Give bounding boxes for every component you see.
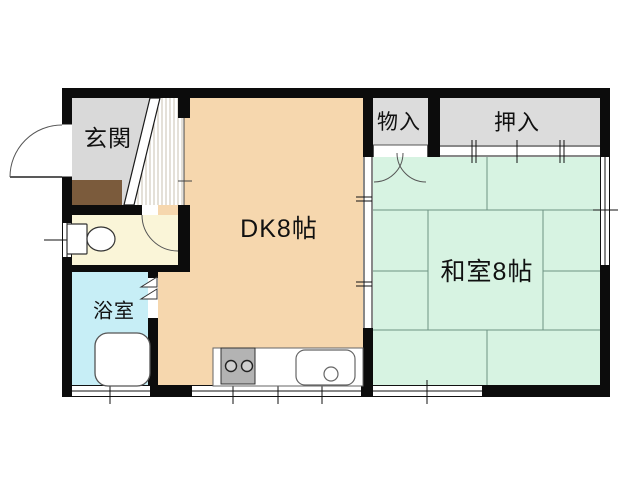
room-label-bathroom: 浴室 (93, 295, 135, 324)
entrance-opening-jambs (62, 124, 72, 177)
floor-plan: 玄関 物入 押入 DK8帖 和室8帖 浴室 (0, 0, 640, 480)
room-label-monoire: 物入 (377, 106, 421, 136)
sink-icon (296, 350, 355, 385)
room-label-oshiire: 押入 (494, 105, 540, 137)
entry-step (72, 180, 122, 205)
stove-icon (221, 348, 255, 384)
entrance-door-icon (10, 125, 62, 177)
floor-plan-drawing (0, 0, 640, 480)
kitchen-counter (213, 348, 363, 386)
room-label-washitsu: 和室8帖 (441, 252, 534, 288)
bathtub-icon (95, 333, 150, 386)
room-label-genkan: 玄関 (84, 119, 132, 153)
room-label-dk: DK8帖 (240, 209, 318, 245)
